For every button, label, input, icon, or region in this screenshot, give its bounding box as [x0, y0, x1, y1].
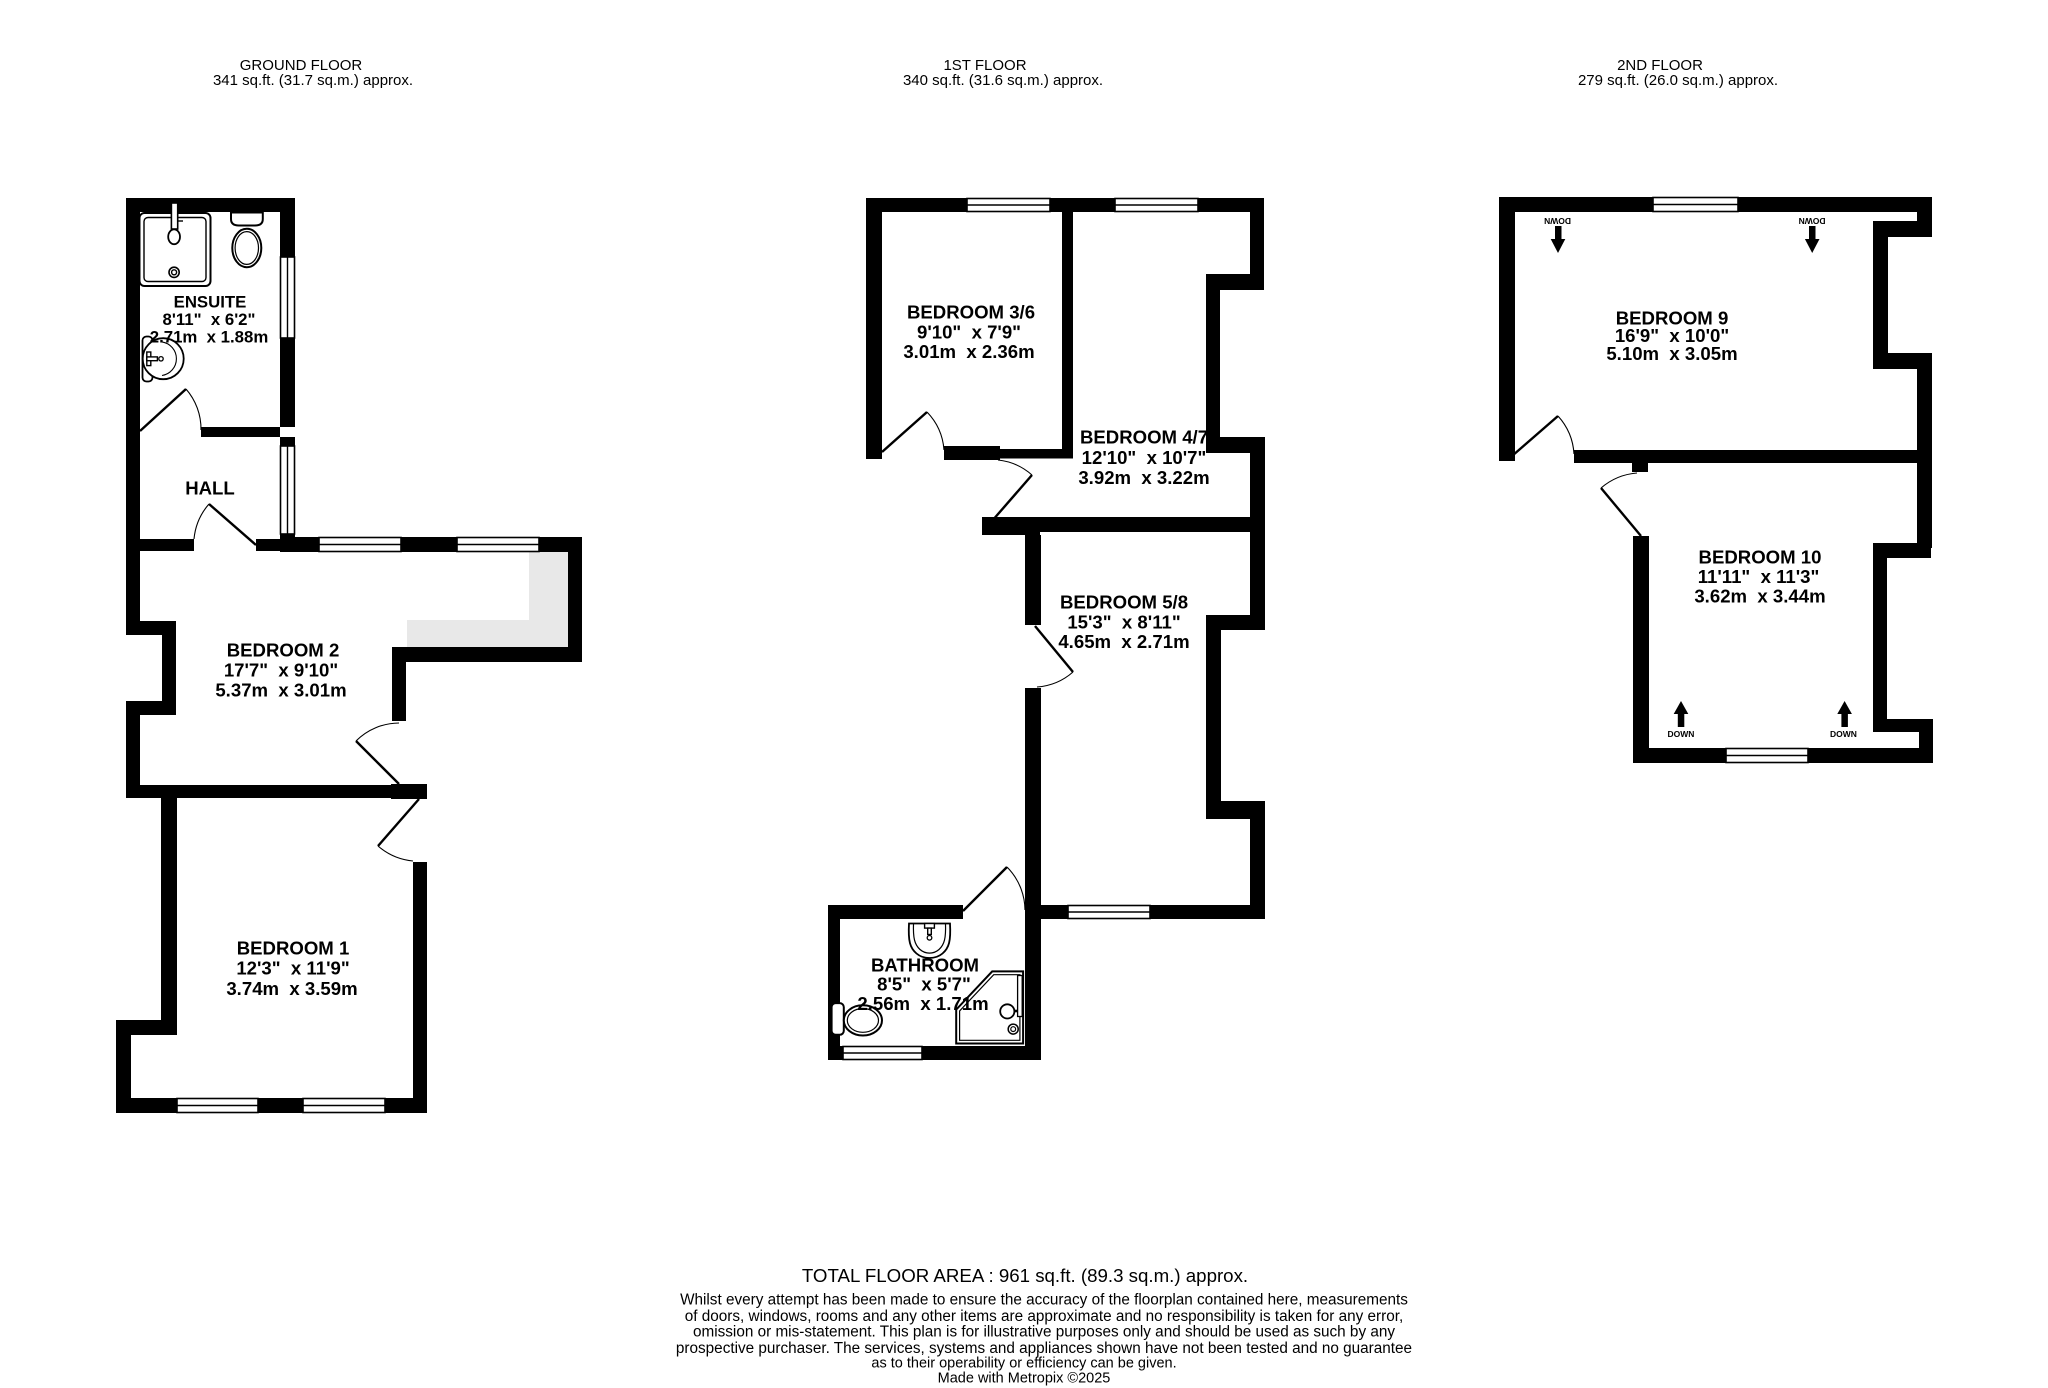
svg-text:DOWN: DOWN: [1799, 216, 1826, 226]
svg-text:BEDROOM 2: BEDROOM 2: [227, 640, 340, 661]
svg-text:3.01m x 2.36m: 3.01m x 2.36m: [903, 341, 1034, 362]
svg-text:8'5" x 5'7": 8'5" x 5'7": [877, 974, 971, 995]
svg-text:BEDROOM 1: BEDROOM 1: [237, 938, 350, 959]
svg-text:Made with Metropix ©2025: Made with Metropix ©2025: [938, 1371, 1111, 1387]
svg-text:3.62m x 3.44m: 3.62m x 3.44m: [1694, 586, 1825, 607]
svg-text:12'3" x 11'9": 12'3" x 11'9": [236, 958, 349, 979]
svg-text:Whilst every attempt has been: Whilst every attempt has been made to en…: [680, 1292, 1408, 1309]
svg-text:as to their operability or eff: as to their operability or efficiency ca…: [871, 1356, 1176, 1372]
svg-text:ENSUITE: ENSUITE: [174, 293, 247, 312]
svg-text:9'10" x 7'9": 9'10" x 7'9": [917, 322, 1021, 343]
svg-text:3.92m x 3.22m: 3.92m x 3.22m: [1078, 467, 1209, 488]
svg-text:omission or mis-statement. Thi: omission or mis-statement. This plan is …: [693, 1324, 1395, 1341]
svg-text:DOWN: DOWN: [1544, 216, 1571, 226]
svg-text:prospective purchaser. The ser: prospective purchaser. The services, sys…: [676, 1340, 1412, 1357]
svg-text:of doors, windows, rooms and a: of doors, windows, rooms and any other i…: [685, 1308, 1403, 1325]
svg-text:5.37m x 3.01m: 5.37m x 3.01m: [215, 680, 346, 701]
svg-text:HALL: HALL: [185, 478, 235, 499]
svg-text:TOTAL FLOOR AREA : 961 sq.ft.: TOTAL FLOOR AREA : 961 sq.ft. (89.3 sq.m…: [802, 1265, 1248, 1286]
svg-text:12'10" x 10'7": 12'10" x 10'7": [1082, 447, 1207, 468]
svg-text:BEDROOM 10: BEDROOM 10: [1699, 547, 1822, 568]
svg-text:BEDROOM 3/6: BEDROOM 3/6: [907, 302, 1035, 323]
svg-text:341 sq.ft. (31.7 sq.m.) approx: 341 sq.ft. (31.7 sq.m.) approx.: [213, 72, 413, 89]
svg-text:340 sq.ft. (31.6 sq.m.) approx: 340 sq.ft. (31.6 sq.m.) approx.: [903, 72, 1103, 89]
svg-text:BEDROOM 4/7: BEDROOM 4/7: [1080, 427, 1208, 448]
svg-text:11'11" x 11'3": 11'11" x 11'3": [1698, 566, 1820, 587]
svg-text:5.10m x 3.05m: 5.10m x 3.05m: [1606, 343, 1737, 364]
svg-text:17'7" x 9'10": 17'7" x 9'10": [224, 660, 338, 681]
svg-text:DOWN: DOWN: [1668, 729, 1695, 739]
svg-text:3.74m x 3.59m: 3.74m x 3.59m: [226, 978, 357, 999]
svg-text:8'11" x 6'2": 8'11" x 6'2": [163, 310, 256, 329]
svg-text:2.71m x 1.88m: 2.71m x 1.88m: [150, 328, 269, 347]
svg-text:15'3" x 8'11": 15'3" x 8'11": [1067, 612, 1180, 633]
svg-text:DOWN: DOWN: [1830, 729, 1857, 739]
svg-text:BEDROOM 5/8: BEDROOM 5/8: [1060, 592, 1188, 613]
svg-text:2.56m x 1.71m: 2.56m x 1.71m: [857, 993, 988, 1014]
svg-text:BATHROOM: BATHROOM: [871, 955, 979, 976]
svg-text:4.65m x 2.71m: 4.65m x 2.71m: [1058, 631, 1189, 652]
svg-text:279 sq.ft. (26.0 sq.m.) approx: 279 sq.ft. (26.0 sq.m.) approx.: [1578, 72, 1778, 89]
